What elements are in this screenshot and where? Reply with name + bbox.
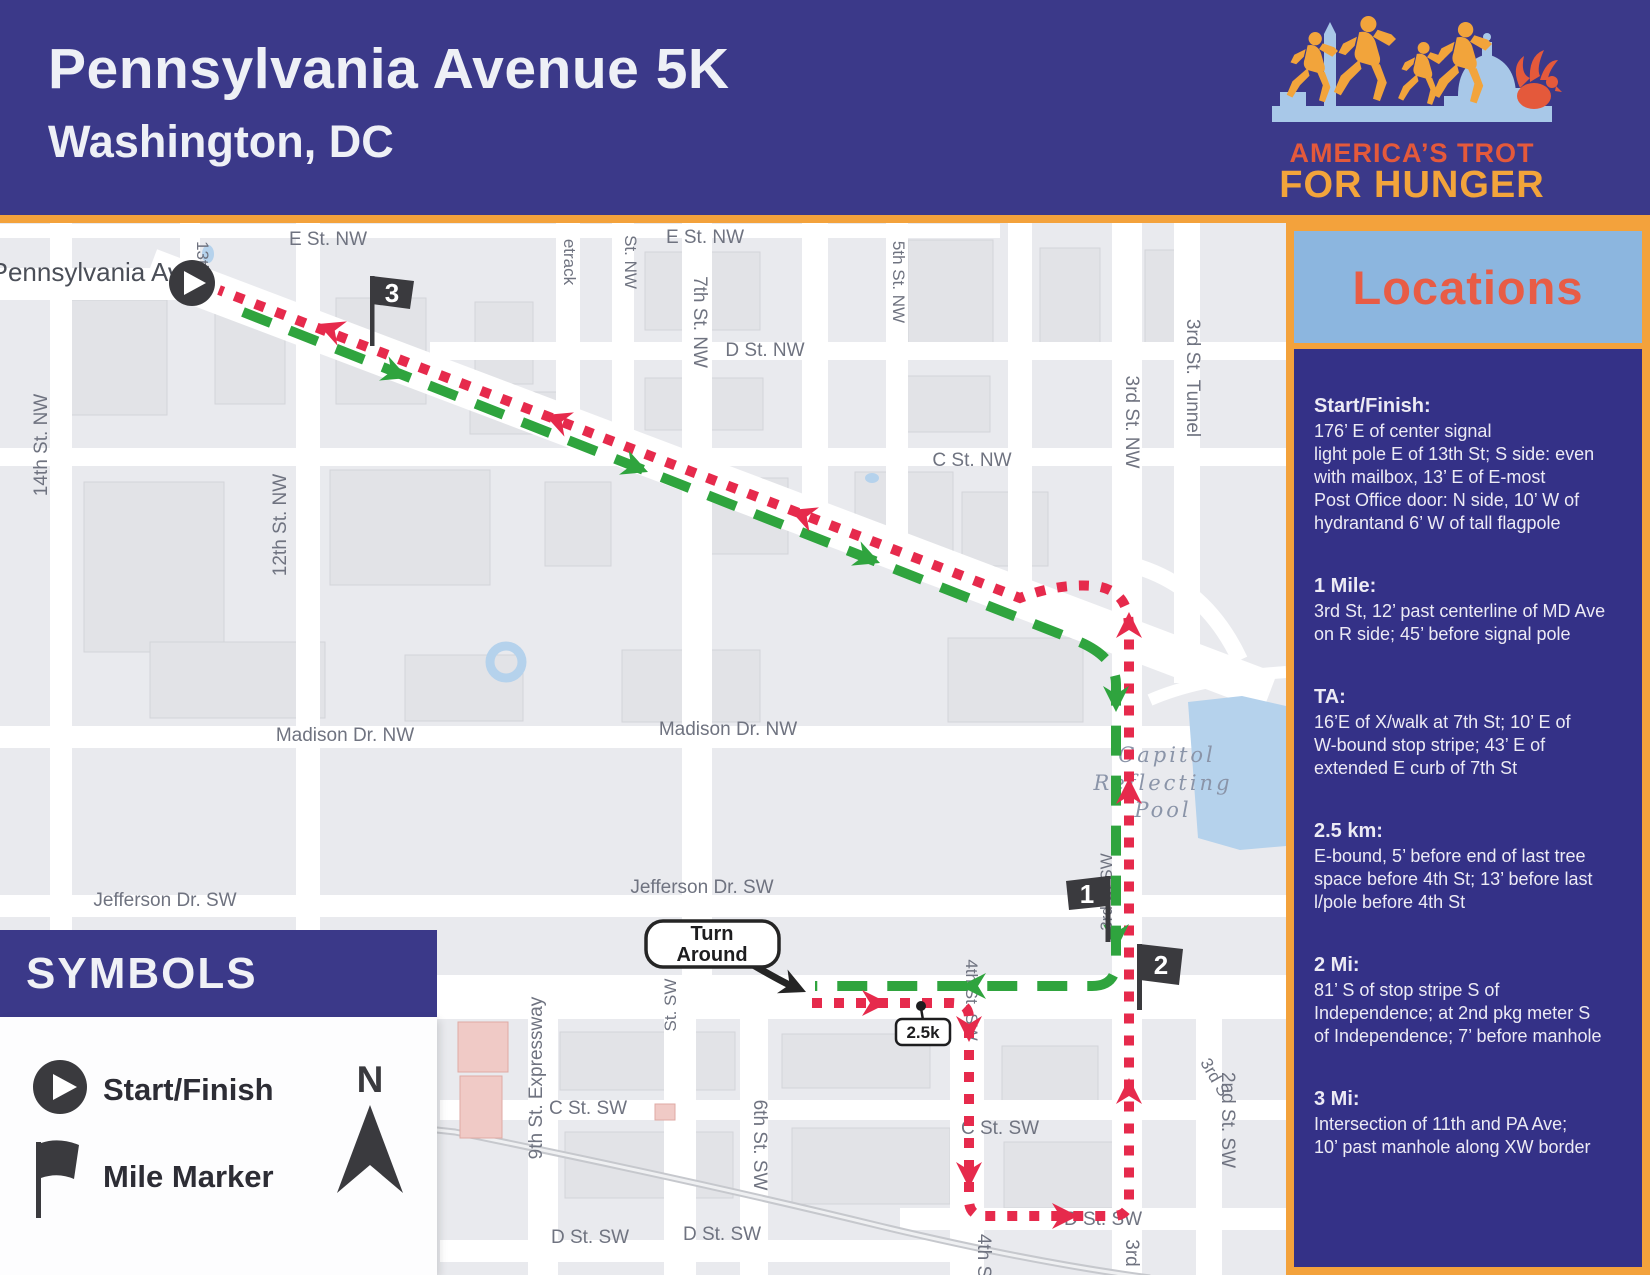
section-heading: Start/Finish: [1314, 395, 1624, 418]
location-section-1-mile: 1 Mile: 3rd St, 12’ past centerline of M… [1314, 575, 1624, 646]
section-heading: 3 Mi: [1314, 1088, 1624, 1111]
street-label: E St. NW [666, 227, 744, 248]
locations-header: Locations [1294, 231, 1642, 349]
street-label: D St. NW [725, 340, 804, 361]
page-subtitle: Washington, DC [48, 116, 394, 168]
street-label: C St. NW [932, 450, 1011, 471]
street-label: Pool [1133, 798, 1191, 822]
street-label: 9th St. Expressway [526, 996, 547, 1159]
street-label: E St. NW [289, 229, 367, 250]
street-label: St. NW [621, 235, 640, 289]
north-compass: N [325, 1059, 415, 1206]
location-section-ta: TA: 16’E of X/walk at 7th St; 10’ E of W… [1314, 686, 1624, 780]
street-label: C St. SW [549, 1098, 627, 1119]
logo-text-line2: FOR HUNGER [1262, 164, 1562, 207]
section-body: Intersection of 11th and PA Ave; 10’ pas… [1314, 1113, 1624, 1159]
location-section-start-finish: Start/Finish: 176’ E of center signal li… [1314, 395, 1624, 535]
street-label: D St. SW [551, 1227, 629, 1248]
street-label: 3rd St. NW [1121, 376, 1142, 469]
svg-text:2.5k: 2.5k [906, 1023, 940, 1042]
street-label: Madison Dr. NW [659, 719, 797, 740]
street-label: 12th St. NW [270, 474, 291, 576]
svg-text:2: 2 [1154, 950, 1168, 980]
street-label: Jefferson Dr. SW [630, 877, 773, 898]
section-body: 3rd St, 12’ past centerline of MD Ave on… [1314, 600, 1624, 646]
start-finish-marker [169, 260, 215, 306]
poster-page: Pennsylvania AveE St. NWE St. NWD St. NW… [0, 0, 1650, 1275]
street-label: 6th St. SW [749, 1100, 770, 1191]
header-banner: Pennsylvania Avenue 5K Washington, DC [0, 0, 1650, 223]
section-heading: 2 Mi: [1314, 954, 1624, 977]
mile-marker-icon [34, 1139, 86, 1221]
street-label: Madison Dr. NW [276, 725, 414, 746]
symbols-header: SYMBOLS [0, 930, 437, 1017]
locations-title: Locations [1353, 260, 1584, 315]
section-body: 176’ E of center signal light pole E of … [1314, 420, 1624, 535]
street-label: 4th S [973, 1234, 994, 1275]
street-label: 14th St. NW [31, 394, 52, 496]
logo-graphic [1262, 4, 1562, 139]
street-label: 7th St. NW [689, 276, 710, 368]
street-label: St. SW [661, 979, 680, 1032]
compass-n-label: N [325, 1059, 415, 1101]
svg-text:Turn: Turn [691, 923, 734, 945]
legend-mile-marker-label: Mile Marker [103, 1159, 274, 1195]
locations-body: Start/Finish: 176’ E of center signal li… [1294, 349, 1642, 1267]
symbols-legend: SYMBOLS Start/Finish Mile Marker N [0, 930, 437, 1275]
location-section-3-mi: 3 Mi: Intersection of 11th and PA Ave; 1… [1314, 1088, 1624, 1159]
svg-text:Around: Around [676, 944, 747, 966]
location-section-2-mi: 2 Mi: 81’ S of stop stripe S of Independ… [1314, 954, 1624, 1048]
trot-for-hunger-logo: AMERICA’S TROT FOR HUNGER [1262, 4, 1562, 218]
section-body: E-bound, 5’ before end of last tree spac… [1314, 845, 1624, 914]
street-label: 3rd St. Tunnel [1182, 319, 1203, 437]
north-arrow-icon [325, 1101, 415, 1201]
street-label: Jefferson Dr. SW [93, 890, 236, 911]
location-section-2-5km: 2.5 km: E-bound, 5’ before end of last t… [1314, 820, 1624, 914]
page-title: Pennsylvania Avenue 5K [48, 36, 730, 102]
street-label: 5th St. NW [889, 241, 908, 323]
section-heading: TA: [1314, 686, 1624, 709]
section-heading: 1 Mile: [1314, 575, 1624, 598]
symbols-body: Start/Finish Mile Marker N [0, 1017, 437, 1275]
street-label: etrack [560, 239, 579, 286]
street-label: D St. SW [683, 1224, 761, 1245]
svg-text:3: 3 [385, 278, 399, 308]
start-finish-icon [30, 1057, 90, 1117]
street-label: Pennsylvania Ave [0, 257, 195, 287]
turkey-icon [1516, 50, 1562, 109]
locations-panel: Locations Start/Finish: 176’ E of center… [1286, 223, 1650, 1275]
section-heading: 2.5 km: [1314, 820, 1624, 843]
section-body: 16’E of X/walk at 7th St; 10’ E of W-bou… [1314, 711, 1624, 780]
section-body: 81’ S of stop stripe S of Independence; … [1314, 979, 1624, 1048]
legend-start-finish-label: Start/Finish [103, 1072, 274, 1108]
symbols-title: SYMBOLS [0, 949, 258, 999]
svg-text:1: 1 [1080, 879, 1094, 909]
street-label: 3rd [1121, 1239, 1142, 1266]
